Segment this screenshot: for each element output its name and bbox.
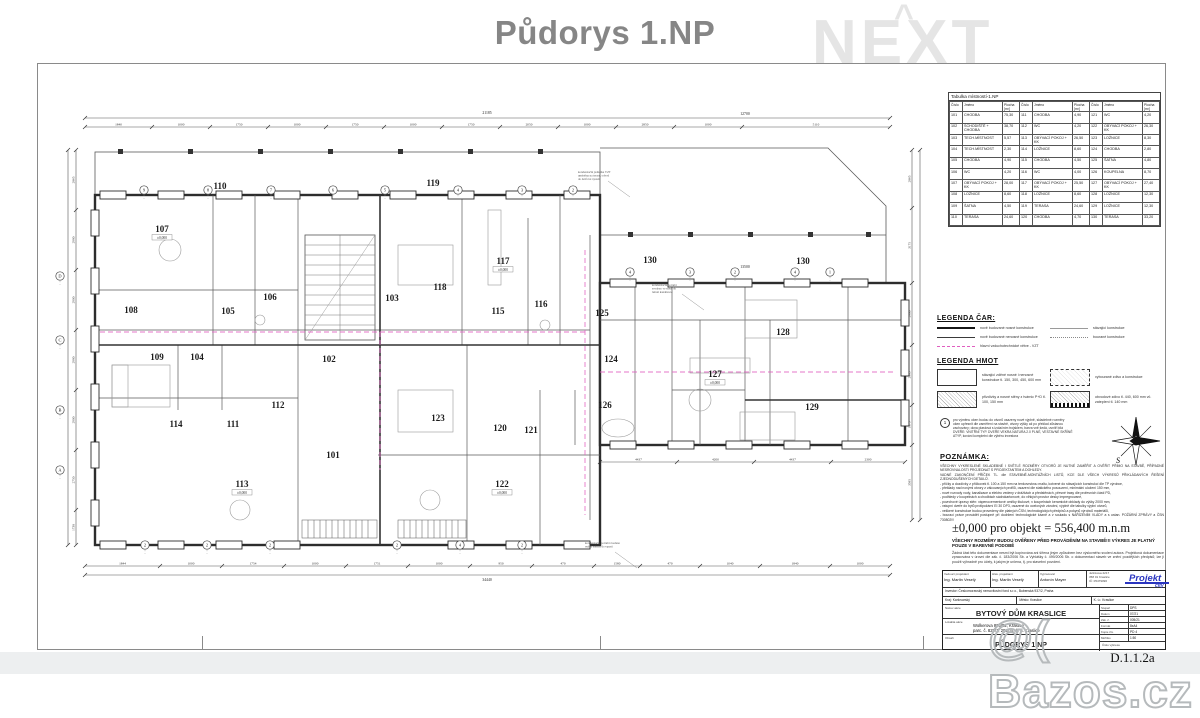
room-table-header: Plocha [m²] xyxy=(1003,102,1020,112)
legend-mass-swatch xyxy=(1050,369,1090,386)
svg-text:2900: 2900 xyxy=(908,310,912,317)
room-table-cell: LOŽNICE xyxy=(963,191,1003,202)
room-table-cell: 4,20 xyxy=(1073,123,1090,134)
svg-text:3585: 3585 xyxy=(908,479,912,486)
elevation-warning: VŠECHNY ROZMĚRY BUDOU OVĚŘENY PŘED PROVÁ… xyxy=(952,538,1164,549)
room-label: 108 xyxy=(124,305,138,315)
circled-note-line: ATYP, kování kompletní dle výběru invest… xyxy=(953,434,1073,438)
svg-text:1730: 1730 xyxy=(72,524,76,531)
notes-text: VŠECHNY VYKRESLENÉ SKLADEBNÉ I SVĚTLÉ RO… xyxy=(940,464,1164,522)
room-table-header: Číslo xyxy=(1090,102,1103,112)
room-table-cell: TERASA xyxy=(1033,203,1073,214)
room-table-cell: LOŽNICE xyxy=(1103,203,1143,214)
svg-text:1000: 1000 xyxy=(584,123,591,127)
room-label: 123 xyxy=(431,413,445,423)
room-label: 105 xyxy=(221,306,235,316)
room-table-cell: 5,57 xyxy=(1003,134,1020,145)
room-table-cell: 116 xyxy=(1020,169,1033,180)
room-table-row: 101CHODBA75,30111CHODBA4,90121WC4,20 xyxy=(950,112,1160,123)
room-table-row: 108LOŽNICE8,60118LOŽNICE8,60128LOŽNICE12… xyxy=(950,191,1160,202)
legend-masses-right-column: vybourané zdivo a konstrukceobvodové zdi… xyxy=(1050,369,1163,413)
svg-text:2850: 2850 xyxy=(642,123,649,127)
room-label: 110 xyxy=(213,181,227,191)
room-table-row: 102SCHODIŠTĚ + CHODBA38,70112WC4,20122OB… xyxy=(950,123,1160,134)
legend-line-sample xyxy=(937,346,975,347)
legend-mass-item: stávající zděné nosné i nenosné konstruk… xyxy=(937,369,1050,386)
room-table-row: 109ŠATNA4,50119TERASA24,60129LOŽNICE12,3… xyxy=(950,203,1160,214)
room-label: 106 xyxy=(263,292,277,302)
room-table-cell: TERASA xyxy=(963,214,1003,225)
room-table-cell: 12,30 xyxy=(1143,191,1160,202)
room-table-cell: 121 xyxy=(1090,112,1103,123)
svg-text:4200: 4200 xyxy=(712,458,719,462)
investor-row: Investor: Českomoravský nemovitostní fon… xyxy=(943,588,1165,597)
room-table-cell: 122 xyxy=(1090,123,1103,134)
room-table-cell: 102 xyxy=(950,123,963,134)
room-table-cell: 4,80 xyxy=(1143,157,1160,168)
svg-text:1840: 1840 xyxy=(792,562,799,566)
circled-note: 1 pro výměnu oken budou do otvorů osazen… xyxy=(940,418,1110,439)
room-table-cell: OBÝVACÍ POKOJ + KK xyxy=(1103,180,1143,191)
note-line: VADNÉ ZAKONČENÍ PŘÍČEK TL. dle STAVEBNĚ-… xyxy=(940,473,1164,482)
room-table-header: Jméno xyxy=(1033,102,1073,112)
legend-mass-item: obvodové zdivo tl. 440, 600 mm vč. zatep… xyxy=(1050,391,1163,408)
room-table-cell: 2,30 xyxy=(1003,146,1020,157)
room-label: 104 xyxy=(190,352,204,362)
legend-lines-right-column: stávající konstrukcebourané konstrukce xyxy=(1050,326,1163,353)
svg-text:2900: 2900 xyxy=(72,416,76,423)
room-table-cell: 123 xyxy=(1090,134,1103,145)
room-label: 127 xyxy=(708,369,722,379)
elevation-value: ±0,000 pro objekt = 556,400 m.n.m xyxy=(952,521,1164,536)
room-table-cell: OBÝVACÍ POKOJ + KK xyxy=(1103,123,1143,134)
legend-mass-item: vybourané zdivo a konstrukce xyxy=(1050,369,1163,386)
room-table-cell: 24,60 xyxy=(1003,214,1020,225)
role-label: Vypracoval xyxy=(1040,572,1085,576)
room-table-cell: LOŽNICE xyxy=(1033,146,1073,157)
notes-title: POZNÁMKA: xyxy=(940,452,1164,461)
room-label: 119 xyxy=(426,178,440,188)
svg-text:2050: 2050 xyxy=(526,123,533,127)
room-table-cell: LOŽNICE xyxy=(1103,134,1143,145)
note-line: VŠECHNY VYKRESLENÉ SKLADEBNÉ I SVĚTLÉ RO… xyxy=(940,464,1164,473)
svg-text:1000: 1000 xyxy=(857,562,864,566)
room-table-cell: 33,20 xyxy=(1143,214,1160,225)
room-table-cell: 24,60 xyxy=(1073,203,1090,214)
room-table-cell: 4,50 xyxy=(1073,157,1090,168)
svg-text:D: D xyxy=(58,274,61,279)
office-cell: Jelínkova 2217358 01 KrasliceIČ: 0547909… xyxy=(1087,571,1165,587)
svg-text:2865: 2865 xyxy=(908,175,912,182)
legend-mass-item: přizdívky a nosné stěny z tvárnic P+D tl… xyxy=(937,391,1050,408)
role-value: Ing. Martin Veselý xyxy=(992,577,1037,582)
svg-text:5110: 5110 xyxy=(813,123,820,127)
room-table-cell: 128 xyxy=(1090,191,1103,202)
svg-text:2885: 2885 xyxy=(908,371,912,378)
svg-text:12700: 12700 xyxy=(740,112,750,116)
room-table-cell: KOUPELNA xyxy=(1103,169,1143,180)
svg-text:1000: 1000 xyxy=(436,562,443,566)
room-table-cell: CHODBA xyxy=(1103,146,1143,157)
legend-line-item: hlavní vzduchotechnické větve - VZT xyxy=(937,344,1050,348)
svg-text:1875: 1875 xyxy=(908,421,912,428)
room-label: 115 xyxy=(491,306,505,316)
room-table-cell: WC xyxy=(963,169,1003,180)
legend-line-item: nově budované nosné konstrukce xyxy=(937,326,1050,330)
svg-text:2: 2 xyxy=(269,543,271,548)
svg-text:1750: 1750 xyxy=(236,123,243,127)
room-table-cell: 101 xyxy=(950,112,963,123)
svg-text:2750: 2750 xyxy=(72,476,76,483)
location-label: Lokalita akce xyxy=(945,620,963,624)
room-table-cell: OBÝVACÍ POKOJ + KK xyxy=(1033,134,1073,145)
legend-mass-label: obvodové zdivo tl. 440, 600 mm vč. zatep… xyxy=(1095,395,1163,403)
svg-text:2: 2 xyxy=(144,543,146,548)
room-label: 109 xyxy=(150,352,164,362)
room-table-cell: 107 xyxy=(950,180,963,191)
room-label: 102 xyxy=(322,354,336,364)
legend-line-item: stávající konstrukce xyxy=(1050,326,1163,330)
elevation-block: ±0,000 pro objekt = 556,400 m.n.m VŠECHN… xyxy=(952,521,1164,565)
room-table-cell: CHODBA xyxy=(1033,157,1073,168)
room-table-cell: 108 xyxy=(950,191,963,202)
room-table-cell: 119 xyxy=(1020,203,1033,214)
room-label: 114 xyxy=(169,419,183,429)
room-label: 117 xyxy=(496,256,510,266)
legend-line-label: bourané konstrukce xyxy=(1093,335,1125,339)
legend-mass-label: přizdívky a nosné stěny z tvárnic P+D tl… xyxy=(982,395,1050,403)
svg-text:950: 950 xyxy=(498,562,503,566)
room-label: 101 xyxy=(326,450,340,460)
svg-text:C: C xyxy=(59,338,62,343)
room-table-cell: 4,90 xyxy=(1073,112,1090,123)
svg-text:2: 2 xyxy=(206,543,208,548)
legend-line-label: nově budované nenosné konstrukce xyxy=(980,335,1038,339)
room-label: 128 xyxy=(776,327,790,337)
room-table-cell: 115 xyxy=(1020,157,1033,168)
legend-lines-left-column: nově budované nosné konstrukcenově budov… xyxy=(937,326,1050,353)
room-table-body: 101CHODBA75,30111CHODBA4,90121WC4,20102S… xyxy=(950,112,1160,226)
room-table-cell: 4,90 xyxy=(1003,157,1020,168)
room-table-row: 105CHODBA4,90115CHODBA4,50125ŠATNA4,80 xyxy=(950,157,1160,168)
title-block-roles-row: Vedoucí projektant Ing. Martin Veselý Hl… xyxy=(943,571,1165,588)
room-table-cell: 28,00 xyxy=(1003,180,1020,191)
svg-text:1844: 1844 xyxy=(119,562,126,566)
logo-subtext: city xyxy=(1155,583,1164,589)
room-table-cell: 4,00 xyxy=(1073,169,1090,180)
room-label: 129 xyxy=(805,402,819,412)
legend-mass-label: vybourané zdivo a konstrukce xyxy=(1095,375,1143,379)
svg-text:1754: 1754 xyxy=(250,562,257,566)
circled-note-text: pro výměnu oken budou do otvorů osazeny … xyxy=(953,418,1073,439)
svg-text:13500: 13500 xyxy=(740,265,750,269)
room-table-cell: 117 xyxy=(1020,180,1033,191)
svg-text:4437: 4437 xyxy=(635,458,642,462)
role-label: Vedoucí projektant xyxy=(944,572,989,576)
room-table-header-row: ČísloJménoPlocha [m²]ČísloJménoPlocha [m… xyxy=(950,102,1160,112)
room-table-cell: 126 xyxy=(1090,169,1103,180)
office-address: Jelínkova 2217358 01 KrasliceIČ: 0547909… xyxy=(1089,572,1125,586)
room-table-cell: CHODBA xyxy=(963,157,1003,168)
room-table-cell: 26,30 xyxy=(1143,123,1160,134)
room-table-cell: 8,70 xyxy=(1143,169,1160,180)
room-table-grid: ČísloJménoPlocha [m²]ČísloJménoPlocha [m… xyxy=(949,101,1160,226)
room-label: 103 xyxy=(385,293,399,303)
svg-text:2900: 2900 xyxy=(72,296,76,303)
region-cell: Kraj: Karlovarský xyxy=(943,597,1017,604)
room-table-cell: 75,30 xyxy=(1003,112,1020,123)
room-table-cell: TECH.MÍSTNOST xyxy=(963,134,1003,145)
svg-text:2980: 2980 xyxy=(72,356,76,363)
room-label: 118 xyxy=(433,282,447,292)
room-table-cell: 110 xyxy=(950,214,963,225)
svg-text:2: 2 xyxy=(572,188,574,193)
room-table-cell: 120 xyxy=(1020,214,1033,225)
room-table-row: 104TECH.MÍSTNOST2,30114LOŽNICE8,60124CHO… xyxy=(950,146,1160,157)
room-table-cell: 26,50 xyxy=(1073,134,1090,145)
bazos-watermark: @( Bazos.cz xyxy=(988,610,1200,718)
notes-block: POZNÁMKA: VŠECHNY VYKRESLENÉ SKLADEBNÉ I… xyxy=(940,452,1164,522)
room-table-header: Jméno xyxy=(1103,102,1143,112)
room-table-header: Číslo xyxy=(950,102,963,112)
legend-line-sample xyxy=(937,327,975,329)
room-table-title: Tabulka místností-1.NP xyxy=(949,93,1160,101)
svg-text:1000: 1000 xyxy=(705,123,712,127)
room-table-cell: CHODBA xyxy=(1033,112,1073,123)
room-table-cell: 106 xyxy=(950,169,963,180)
room-label: 112 xyxy=(271,400,285,410)
room-table-cell: 114 xyxy=(1020,146,1033,157)
room-label: 107 xyxy=(155,224,169,234)
room-table-cell: WC xyxy=(1033,123,1073,134)
room-table-header: Jméno xyxy=(963,102,1003,112)
room-table-cell: ŠATNA xyxy=(963,203,1003,214)
svg-text:2: 2 xyxy=(734,270,736,275)
room-label: 121 xyxy=(524,425,538,435)
legend-line-label: nově budované nosné konstrukce xyxy=(980,326,1034,330)
legend-line-label: stávající konstrukce xyxy=(1093,326,1125,330)
room-table-cell: 8,60 xyxy=(1003,191,1020,202)
svg-text:1: 1 xyxy=(829,270,831,275)
room-table-cell: SCHODIŠTĚ + CHODBA xyxy=(963,123,1003,134)
role-cell: Vypracoval Antonín Mayer xyxy=(1039,571,1087,587)
svg-text:470: 470 xyxy=(667,562,672,566)
room-table-cell: 127 xyxy=(1090,180,1103,191)
role-cell: Hlav. projektant Ing. Martin Veselý xyxy=(991,571,1039,587)
room-table-cell: 109 xyxy=(950,203,963,214)
room-table-cell: 125 xyxy=(1090,157,1103,168)
svg-text:1000: 1000 xyxy=(294,123,301,127)
room-table: Tabulka místností-1.NP ČísloJménoPlocha … xyxy=(948,92,1161,227)
room-table-cell: 103 xyxy=(950,134,963,145)
svg-text:2: 2 xyxy=(396,543,398,548)
room-table-cell: 118 xyxy=(1020,191,1033,202)
legend-masses-title: LEGENDA HMOT xyxy=(937,358,1163,365)
svg-text:21185: 21185 xyxy=(482,111,491,115)
legend-line-sample xyxy=(1050,328,1088,329)
room-table-cell: 124 xyxy=(1090,146,1103,157)
room-table-header: Plocha [m²] xyxy=(1073,102,1090,112)
room-table-row: 103TECH.MÍSTNOST5,57113OBÝVACÍ POKOJ + K… xyxy=(950,134,1160,145)
note-bullet: 1 xyxy=(940,418,950,428)
room-table-cell: 105 xyxy=(950,157,963,168)
room-label: 130 xyxy=(796,256,810,266)
room-table-cell: CHODBA xyxy=(963,112,1003,123)
legend-masses: LEGENDA HMOT stávající zděné nosné i nen… xyxy=(937,358,1163,413)
room-table-cell: 12,30 xyxy=(1143,203,1160,214)
svg-text:1000: 1000 xyxy=(178,123,185,127)
room-table-cell: WC xyxy=(1103,112,1143,123)
legend-masses-left-column: stávající zděné nosné i nenosné konstruk… xyxy=(937,369,1050,413)
room-table-cell: 112 xyxy=(1020,123,1033,134)
room-label: 130 xyxy=(643,255,657,265)
svg-text:1000: 1000 xyxy=(188,562,195,566)
legend-line-label: hlavní vzduchotechnické větve - VZT xyxy=(980,344,1039,348)
room-table-cell: 38,70 xyxy=(1003,123,1020,134)
svg-text:1840: 1840 xyxy=(115,123,122,127)
room-table-cell: ŠATNA xyxy=(1103,157,1143,168)
room-table-row: 106WC4,20116WC4,00126KOUPELNA8,70 xyxy=(950,169,1160,180)
role-value: Ing. Martin Veselý xyxy=(944,577,989,582)
room-label: 113 xyxy=(235,479,249,489)
room-table-cell: LOŽNICE xyxy=(1033,191,1073,202)
room-table-cell: 4,50 xyxy=(1003,203,1020,214)
room-table-cell: 111 xyxy=(1020,112,1033,123)
room-table-cell: LOŽNICE xyxy=(1103,191,1143,202)
room-label: 111 xyxy=(227,419,240,429)
copyright-note: Žádná část této dokumentace nesmí být ko… xyxy=(952,551,1164,565)
legend-lines: LEGENDA ČAR: nově budované nosné konstru… xyxy=(937,315,1163,353)
svg-text:2300: 2300 xyxy=(865,458,872,462)
room-table-cell: TERASA xyxy=(1103,214,1143,225)
region-row: Kraj: KarlovarskýMěsto: KrasliceK. ú.: K… xyxy=(943,597,1165,605)
svg-text:4437: 4437 xyxy=(789,458,796,462)
room-table-cell: WC xyxy=(1033,169,1073,180)
room-table-cell: 25,50 xyxy=(1073,180,1090,191)
room-table-cell: CHODBA xyxy=(1033,214,1073,225)
room-table-cell: 27,40 xyxy=(1143,180,1160,191)
office-logo: Projekt city xyxy=(1125,572,1163,586)
legend-line-item: nově budované nenosné konstrukce xyxy=(937,335,1050,339)
svg-text:vnější stěnou do vpusti: vnější stěnou do vpusti xyxy=(585,544,613,548)
project-label: Název akce xyxy=(945,606,961,610)
room-table-header: Číslo xyxy=(1020,102,1033,112)
room-table-row: 110TERASA24,60120CHODBA4,70130TERASA33,2… xyxy=(950,214,1160,225)
legend-line-sample xyxy=(1050,337,1088,338)
svg-text:3175: 3175 xyxy=(908,242,912,249)
legend-lines-title: LEGENDA ČAR: xyxy=(937,315,1163,322)
svg-text:470: 470 xyxy=(560,562,565,566)
svg-text:2865: 2865 xyxy=(72,176,76,183)
room-label: 120 xyxy=(493,423,507,433)
svg-text:1750: 1750 xyxy=(468,123,475,127)
office-address-line: IČ: 05479096 xyxy=(1089,580,1125,584)
room-table-cell: 113 xyxy=(1020,134,1033,145)
svg-text:1000: 1000 xyxy=(410,123,417,127)
svg-text:1000: 1000 xyxy=(312,562,319,566)
room-label: 116 xyxy=(534,299,548,309)
region-cell: K. ú.: Kraslice xyxy=(1092,597,1165,604)
region-cell: Město: Kraslice xyxy=(1017,597,1091,604)
room-table-cell: TECH.MÍSTNOST xyxy=(963,146,1003,157)
svg-text:1751: 1751 xyxy=(374,562,381,566)
room-table-cell: OBÝVACÍ POKOJ + KK xyxy=(1033,180,1073,191)
role-cell: Vedoucí projektant Ing. Martin Veselý xyxy=(943,571,991,587)
room-table-cell: 8,60 xyxy=(1073,146,1090,157)
room-table-cell: 4,20 xyxy=(1143,112,1160,123)
role-label: Hlav. projektant xyxy=(992,572,1037,576)
svg-text:1040: 1040 xyxy=(727,562,734,566)
room-table-cell: 4,70 xyxy=(1073,214,1090,225)
svg-text:ležaté kanalizace: ležaté kanalizace xyxy=(652,290,673,294)
legend-mass-label: stávající zděné nosné i nenosné konstruk… xyxy=(982,373,1050,381)
room-table-cell: 129 xyxy=(1090,203,1103,214)
page-title: Půdorys 1.NP xyxy=(440,14,770,52)
room-label: 124 xyxy=(604,354,618,364)
room-table-cell: 8,30 xyxy=(1143,134,1160,145)
svg-text:1580: 1580 xyxy=(614,562,621,566)
legend-mass-swatch xyxy=(937,391,977,408)
svg-text:do dešťové vpusti: do dešťové vpusti xyxy=(578,177,600,181)
room-table-header: Plocha [m²] xyxy=(1143,102,1160,112)
svg-text:2: 2 xyxy=(521,543,523,548)
room-table-cell: 4,20 xyxy=(1003,169,1020,180)
room-table-cell: 2,80 xyxy=(1143,146,1160,157)
legend-line-item: bourané konstrukce xyxy=(1050,335,1163,339)
legend-line-sample xyxy=(937,337,975,338)
room-table-cell: 8,60 xyxy=(1073,191,1090,202)
legend-mass-swatch xyxy=(1050,391,1090,408)
room-table-cell: 104 xyxy=(950,146,963,157)
legend-mass-swatch xyxy=(937,369,977,386)
svg-text:2980: 2980 xyxy=(72,236,76,243)
room-label: 125 xyxy=(595,308,609,318)
svg-text:34440: 34440 xyxy=(482,578,492,582)
room-label: 122 xyxy=(495,479,509,489)
svg-text:1750: 1750 xyxy=(352,123,359,127)
room-label: 126 xyxy=(598,400,612,410)
room-table-row: 107OBÝVACÍ POKOJ + KK28,00117OBÝVACÍ POK… xyxy=(950,180,1160,191)
svg-text:B: B xyxy=(59,408,62,413)
content-label: Obsah xyxy=(945,636,954,640)
room-table-cell: 130 xyxy=(1090,214,1103,225)
room-table-cell: OBÝVACÍ POKOJ + KK xyxy=(963,180,1003,191)
role-value: Antonín Mayer xyxy=(1040,577,1085,582)
